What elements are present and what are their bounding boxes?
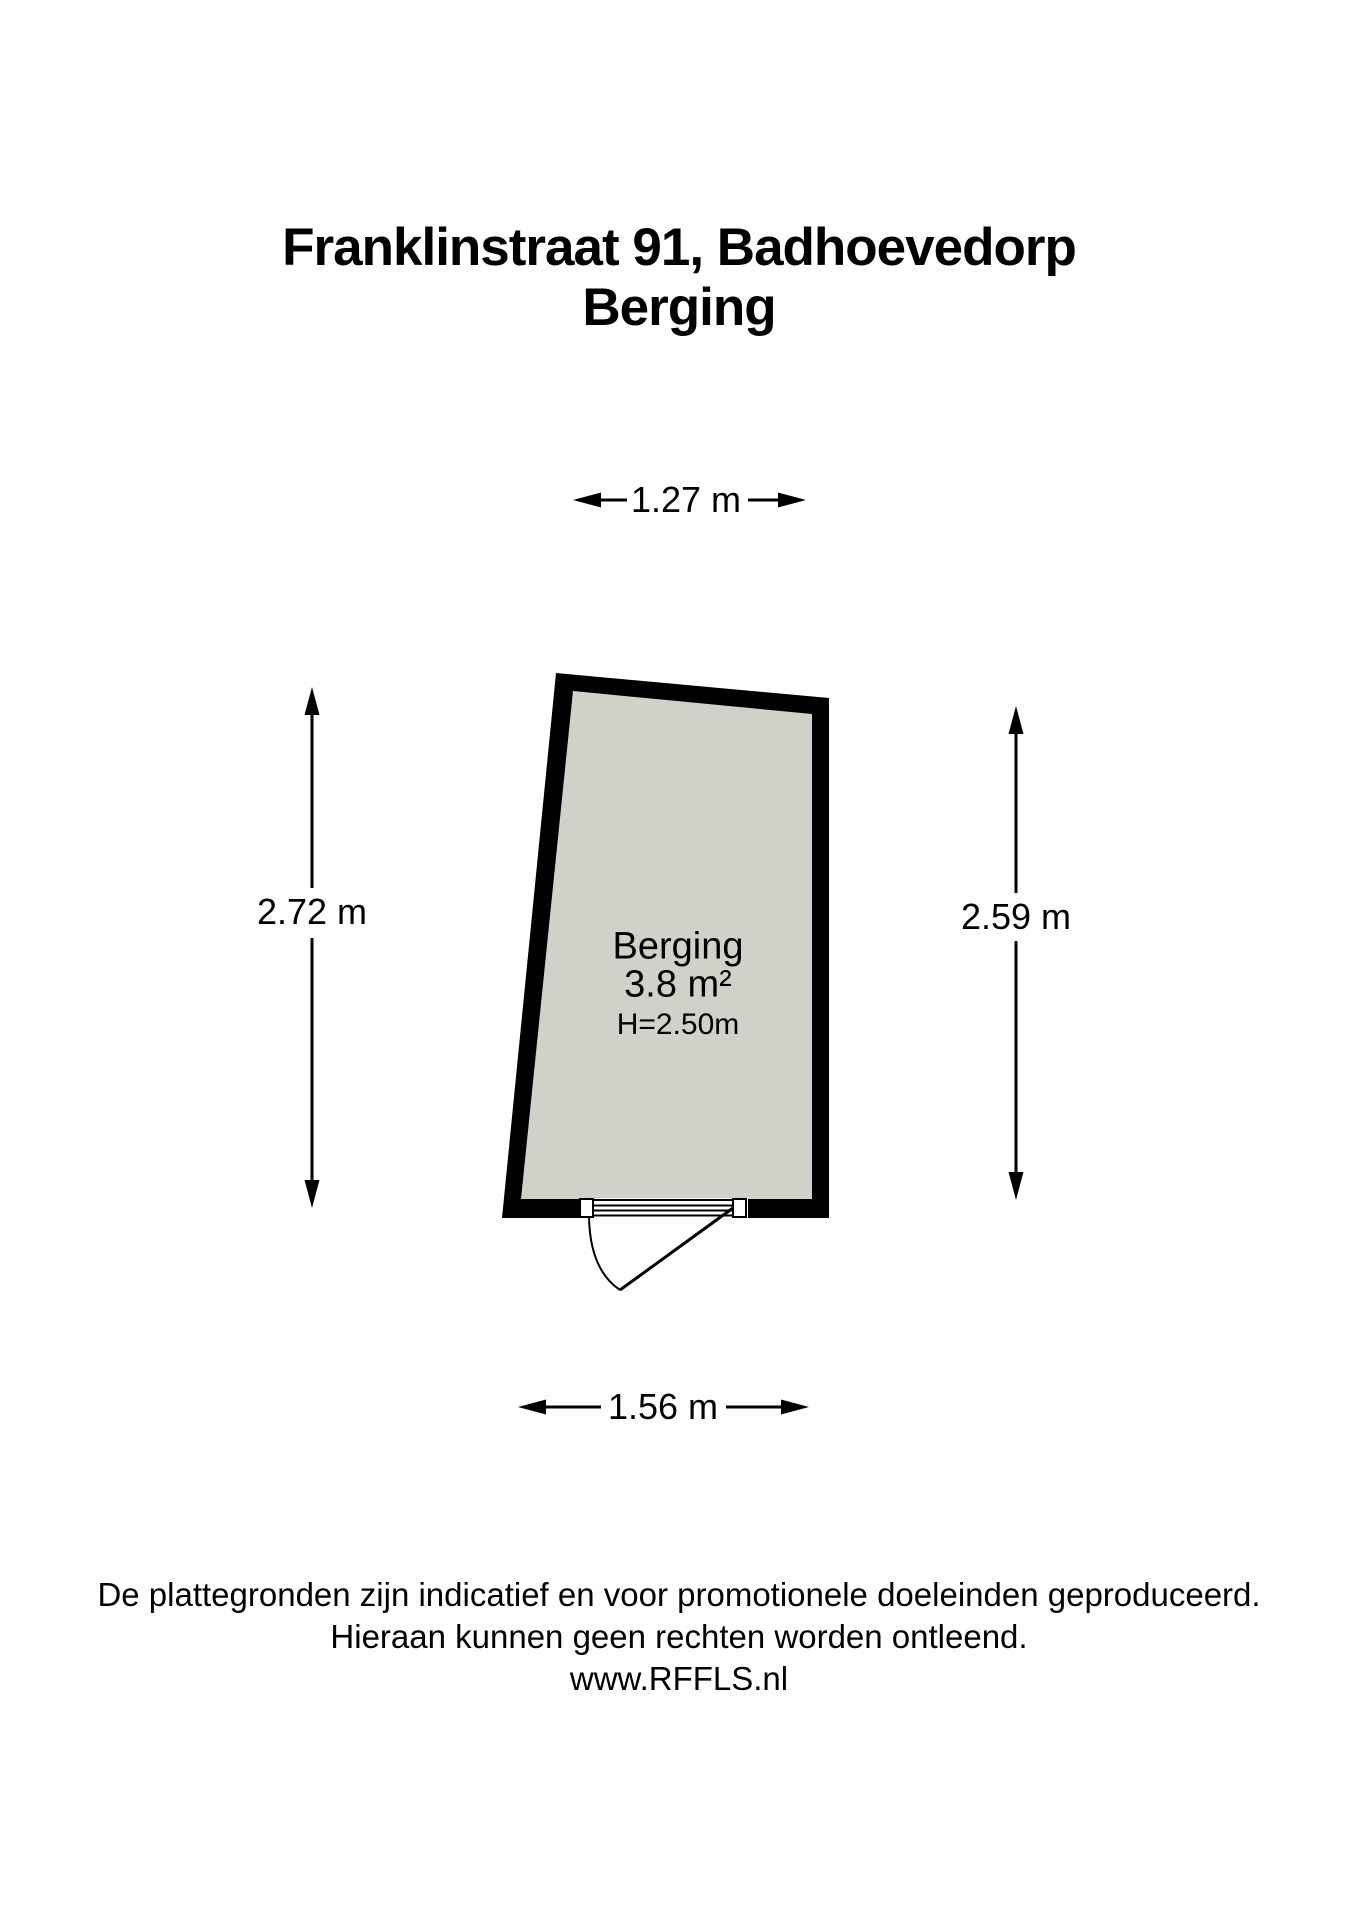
- dimension-left-label: 2.72 m: [253, 891, 371, 933]
- dimension-right-label: 2.59 m: [957, 896, 1075, 938]
- floorplan-page: Franklinstraat 91, Badhoevedorp Berging: [0, 0, 1358, 1920]
- door-post-right: [733, 1199, 746, 1217]
- footer-disclaimer-line1: De plattegronden zijn indicatief en voor…: [0, 1574, 1358, 1616]
- dimension-right-arrow: [1009, 706, 1024, 1200]
- door-swing-arc: [589, 1217, 620, 1290]
- footer-website: www.RFFLS.nl: [0, 1658, 1358, 1700]
- dimension-top-label: 1.27 m: [627, 479, 745, 521]
- room-area-label: 3.8 m²: [624, 964, 732, 1007]
- dimension-left-arrow: [305, 687, 320, 1208]
- footer-disclaimer-line2: Hieraan kunnen geen rechten worden ontle…: [0, 1616, 1358, 1658]
- dimension-bottom-label: 1.56 m: [604, 1386, 722, 1428]
- door-leaf: [620, 1208, 733, 1290]
- footer: De plattegronden zijn indicatief en voor…: [0, 1574, 1358, 1700]
- door-post-left: [580, 1199, 593, 1217]
- room-name-label: Berging: [613, 926, 744, 969]
- room-height-label: H=2.50m: [617, 1008, 740, 1042]
